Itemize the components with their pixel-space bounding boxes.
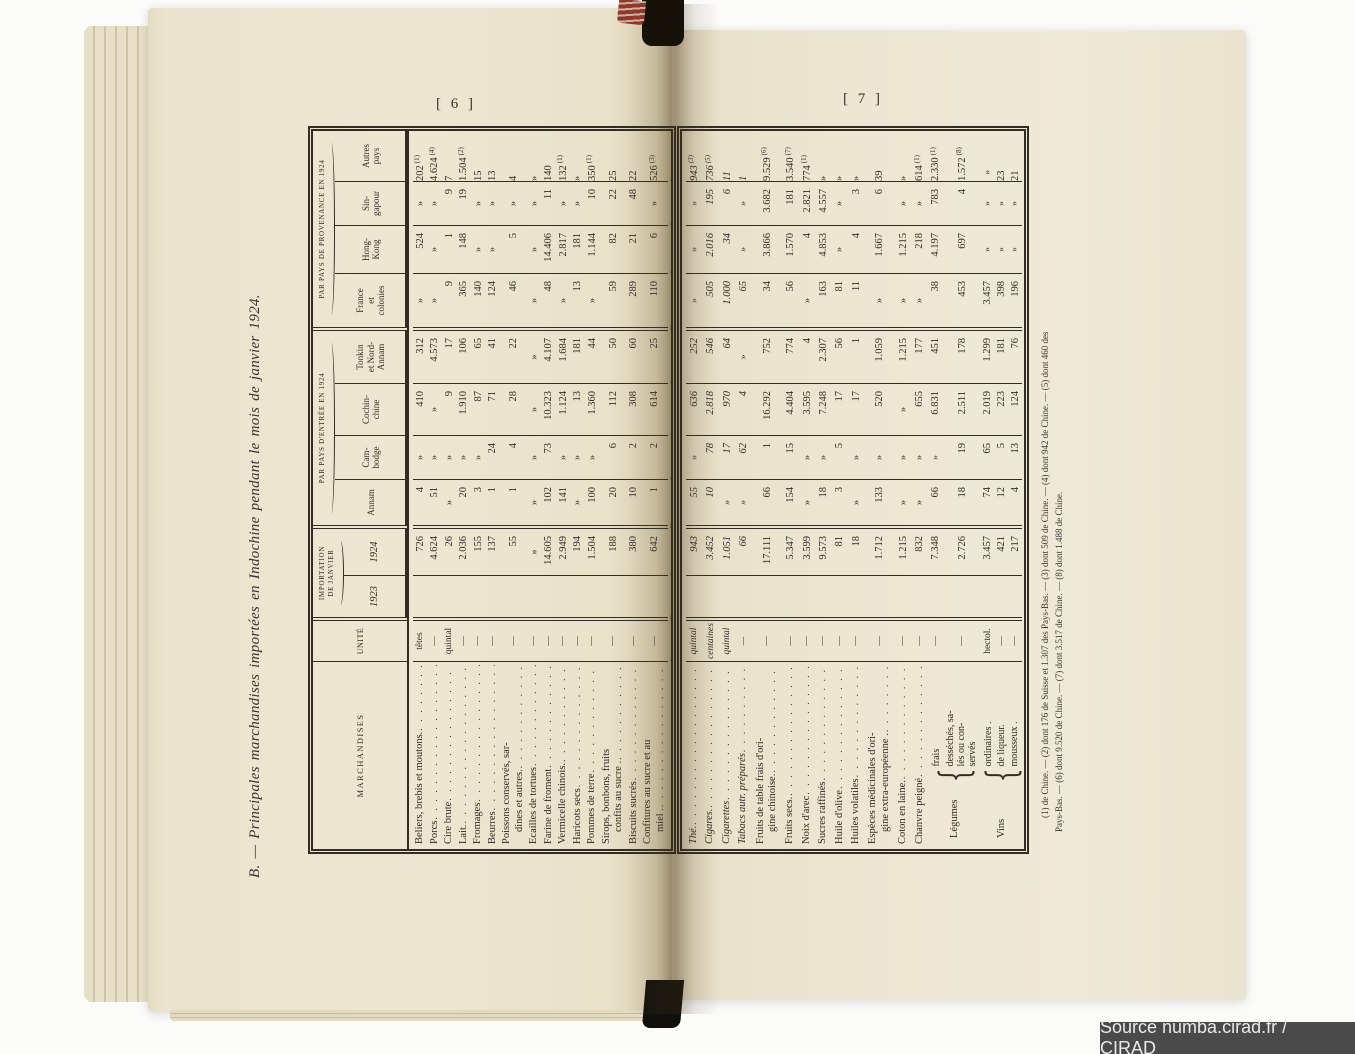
- cell-y1923: [832, 575, 848, 617]
- cell-y1924: 7.3482.726: [928, 525, 981, 575]
- cell-singapour: 9: [442, 181, 457, 225]
- row-label: Confitures au sucre et aumiel .: [641, 661, 668, 849]
- cell-annam: 1: [500, 479, 527, 525]
- cell-y1923: [457, 575, 472, 617]
- cell-tonkin: 546: [702, 327, 718, 383]
- cell-unit: quintal: [719, 617, 735, 661]
- cell-singapour-value: »: [981, 182, 995, 225]
- cell-cambodge-value: 13: [1008, 436, 1022, 479]
- cell-y1923: [442, 575, 457, 617]
- cell-cambodge: »: [848, 435, 864, 479]
- cell-cambodge: »: [895, 435, 911, 479]
- cell-cochinchine: 7.248: [815, 383, 831, 435]
- table-row: Fruits de table frais d'ori-gine chinois…: [752, 131, 783, 849]
- cell-singapour: 22: [600, 181, 627, 225]
- source-watermark-text: Source numba.cirad.fr / CIRAD: [1100, 1017, 1342, 1054]
- cell-singapour: 3: [848, 181, 864, 225]
- cell-france: 11: [848, 273, 864, 327]
- cell-cambodge: »: [799, 435, 815, 479]
- row-label: Cire brute: [442, 661, 457, 849]
- cell-france: 13: [571, 273, 586, 327]
- footnote-line: (1) de Chine. — (2) dont 176 de Suisse e…: [1039, 140, 1053, 832]
- cell-singapour: »: [527, 181, 542, 225]
- header-marchandises: MARCHANDISES: [313, 661, 407, 849]
- cell-tonkin-value: 1.299: [981, 331, 995, 383]
- cell-hongkong: 181: [571, 225, 586, 273]
- cell-annam-value: 74: [981, 480, 995, 525]
- cell-y1923: [981, 575, 1022, 617]
- cell-autres-value: 23: [995, 164, 1009, 182]
- cell-france: 34: [752, 273, 783, 327]
- cell-cochinchine: 87: [471, 383, 486, 435]
- cell-cambodge: 5: [832, 435, 848, 479]
- cell-annam: 66: [752, 479, 783, 525]
- cell-unit: —: [457, 617, 472, 661]
- cell-y1923: [585, 575, 600, 617]
- cell-cambodge: »: [471, 435, 486, 479]
- cell-cochinchine: 3.595: [799, 383, 815, 435]
- cell-singapour: 6: [719, 181, 735, 225]
- cell-y1924-value: 3.457: [981, 529, 995, 575]
- cell-hongkong: »: [471, 225, 486, 273]
- cell-unit: —: [542, 617, 557, 661]
- cell-y1924: 55: [500, 525, 527, 575]
- cell-hongkong: 1.570: [782, 225, 798, 273]
- cell-unit: hectol.——: [981, 617, 1022, 661]
- cell-france: »: [686, 273, 702, 327]
- cell-y1923: [641, 575, 668, 617]
- book-headband: [617, 0, 646, 25]
- cell-tonkin-value: 451: [928, 331, 943, 383]
- cell-autres: 774(1): [799, 148, 815, 181]
- table-row: Coton en laine.—1.215»»»1.215»1.215»»: [895, 131, 911, 849]
- cell-singapour: »: [500, 181, 527, 225]
- cell-cambodge: »: [686, 435, 702, 479]
- cell-cochinchine: 614: [641, 383, 668, 435]
- cell-cochinchine: »: [428, 383, 443, 435]
- cell-y1923: [912, 575, 928, 617]
- row-label: Cigares.: [702, 661, 718, 849]
- cell-hongkong: »: [832, 225, 848, 273]
- book-spine-top: [642, 0, 684, 46]
- cell-cochinchine: 9: [442, 383, 457, 435]
- cell-annam-value: 4: [1008, 480, 1022, 525]
- row-label: Chocolat: [670, 660, 671, 849]
- cell-france: 48: [542, 273, 557, 327]
- cell-annam: »: [912, 479, 928, 525]
- book-scan-photo: [ 6 ] [ 7 ] B. — Principales marchandise…: [0, 0, 1355, 1054]
- cell-autres: 9.529(6): [752, 140, 783, 181]
- cell-annam: »: [670, 478, 671, 527]
- cell-unit-value: —: [995, 621, 1009, 661]
- row-label: Coton en laine.: [895, 661, 911, 849]
- group-sub-label: mousseux .: [1008, 664, 1021, 767]
- cell-y1924-value: 217: [1008, 529, 1022, 575]
- cell-hongkong-value: 697: [943, 226, 981, 273]
- cell-tonkin: 106: [457, 327, 472, 383]
- cell-cambodge: »: [413, 435, 428, 479]
- dot-leader: [429, 665, 442, 820]
- cell-tonkin: 22: [500, 327, 527, 383]
- cell-autres: 22: [627, 164, 642, 182]
- header-1923: 1923: [344, 575, 407, 617]
- cell-cochinchine: 13: [571, 383, 586, 435]
- cell-autres: »: [527, 176, 542, 181]
- cell-unit: —: [527, 617, 542, 661]
- row-label: Farine de froment: [542, 661, 557, 849]
- row-label-group: Légumes{fraisdesséchés, sa-lés ou con-se…: [928, 661, 981, 849]
- cell-france: 9: [442, 273, 457, 327]
- cell-cochinchine: »: [527, 383, 542, 435]
- cell-hongkong-value: »: [981, 226, 995, 273]
- cell-cochinchine: 17: [848, 383, 864, 435]
- cell-y1924: 1.215: [895, 525, 911, 575]
- cell-singapour: 10: [585, 181, 600, 225]
- table-row: Beliers, brebis et moutons.têtes7264»410…: [413, 131, 428, 849]
- dot-leader: [487, 665, 500, 810]
- table-row: Sucres raffinés—9.57318»7.2482.3071634.8…: [815, 131, 831, 849]
- cell-annam: »: [571, 479, 586, 525]
- dot-leader: [472, 665, 485, 802]
- cell-france: 140: [471, 273, 486, 327]
- cell-y1924: 380: [627, 525, 642, 575]
- cell-unit: —: [912, 617, 928, 661]
- cell-annam: 1: [486, 479, 501, 525]
- cell-unit: —: [500, 617, 527, 661]
- cell-france-value: 196: [1008, 274, 1022, 327]
- cell-y1923-value: [995, 576, 1009, 617]
- cell-cambodge: »19: [928, 435, 981, 479]
- header-brace: [328, 143, 335, 315]
- dot-leader: [784, 665, 797, 796]
- cell-y1923: [928, 575, 981, 617]
- cell-autres: »: [848, 176, 864, 181]
- cell-y1923: [428, 575, 443, 617]
- cell-annam: 3: [832, 479, 848, 525]
- cell-unit-value: —: [943, 621, 981, 661]
- cell-france: »: [413, 273, 428, 327]
- header-tonkin: Tonkinet Nord-Annam: [335, 331, 407, 383]
- cell-singapour: 48: [627, 181, 642, 225]
- cell-hongkong: »»»: [981, 225, 1022, 273]
- cell-unit-value: —: [928, 621, 943, 661]
- cell-autres: »2321: [981, 164, 1022, 182]
- cell-unit: —: [600, 617, 627, 661]
- cell-unit: —: [799, 617, 815, 661]
- dot-leader: [586, 665, 599, 772]
- cell-hongkong: 82: [600, 225, 627, 273]
- cell-tonkin: 44: [585, 327, 600, 383]
- cell-tonkin: 2.307: [815, 327, 831, 383]
- cell-y1923: [895, 575, 911, 617]
- cell-hongkong: 1: [442, 225, 457, 273]
- cell-tonkin-value: 76: [1008, 331, 1022, 383]
- cell-tonkin: 1: [848, 327, 864, 383]
- cell-y1924: 194: [571, 525, 586, 575]
- cell-france-value: 453: [943, 274, 981, 327]
- cell-y1924: 1.712: [865, 525, 896, 575]
- cell-singapour: »: [832, 181, 848, 225]
- cell-france: »: [527, 273, 542, 327]
- cell-tonkin: 1.059: [865, 327, 896, 383]
- dot-leader: [613, 665, 626, 760]
- cell-cochinchine: 4.404: [782, 383, 798, 435]
- row-label: Huiles volatiles: [848, 661, 864, 849]
- cell-annam-value: 12: [995, 480, 1009, 525]
- cell-annam: 154: [782, 479, 798, 525]
- cell-singapour: 2.821: [799, 181, 815, 225]
- cell-hongkong-value: 4.197: [928, 226, 943, 273]
- cell-annam: 133: [865, 479, 896, 525]
- cell-y1924: 66: [735, 525, 751, 575]
- cell-y1923: [702, 575, 718, 617]
- cell-annam: »: [527, 479, 542, 525]
- cell-unit: —: [556, 617, 571, 661]
- cell-cochinchine-value: 2.019: [981, 384, 995, 435]
- header-france: Franceetcolonies: [335, 273, 407, 327]
- cell-autres: 1.504(2): [457, 140, 472, 181]
- cell-annam: 141: [556, 479, 571, 525]
- cell-hongkong: 34: [719, 225, 735, 273]
- cell-autres: »: [815, 176, 831, 181]
- cell-hongkong-value: »: [995, 226, 1009, 273]
- table-row: Fromages—1553»8765140»»15: [471, 131, 486, 849]
- cell-tonkin: 50: [600, 327, 627, 383]
- group-sub-label: ordinaires .: [982, 664, 995, 767]
- cell-y1923: [413, 575, 428, 617]
- section-title-rotated: B. — Principales marchandises importées …: [240, 218, 270, 878]
- cell-hongkong: »: [686, 225, 702, 273]
- cell-annam: 18: [815, 479, 831, 525]
- cell-autres: 2.330(1)1.572(8): [928, 140, 981, 181]
- group-sub-label: frais: [929, 664, 944, 767]
- cell-hongkong: 5: [500, 225, 527, 273]
- source-watermark-bar: Source numba.cirad.fr / CIRAD: [1100, 1022, 1355, 1054]
- cell-tonkin: 4: [799, 327, 815, 383]
- cell-autres: 736(5): [702, 148, 718, 181]
- cell-france: 365: [457, 273, 472, 327]
- cell-unit: —: [752, 617, 783, 661]
- cell-singapour-value: 4: [943, 182, 981, 225]
- cell-cochinchine: 410: [413, 383, 428, 435]
- table-row: Haricots secs—194»»1318113181»»: [571, 131, 586, 849]
- table-footnotes: (1) de Chine. — (2) dont 176 de Suisse e…: [1039, 126, 1066, 854]
- cell-y1923: [542, 575, 557, 617]
- cell-france: 38453: [928, 273, 981, 327]
- cell-singapour: »: [428, 181, 443, 225]
- cell-y1923: [556, 575, 571, 617]
- row-label: Vermicelle chinois.: [556, 661, 571, 849]
- cell-y1923-value: [981, 576, 995, 617]
- row-label: Fruits de table frais d'ori-gine chinois…: [752, 661, 783, 849]
- dot-leader: [721, 665, 734, 800]
- cell-y1923-value: [943, 576, 981, 617]
- cell-cochinchine: 71: [486, 383, 501, 435]
- header-group-importation: IMPORTATIONDE JANVIER 1923 1924: [313, 525, 407, 617]
- cell-y1924: 17.111: [752, 525, 783, 575]
- cell-cochinchine: 520: [865, 383, 896, 435]
- cell-singapour: »: [556, 181, 571, 225]
- section-title: B. — Principales marchandises importées …: [240, 218, 270, 878]
- group-sub-label: de liqueur.: [995, 664, 1008, 767]
- row-label: Beliers, brebis et moutons.: [413, 661, 428, 849]
- cell-unit: —: [815, 617, 831, 661]
- cell-singapour: 19: [457, 181, 472, 225]
- cell-cambodge: »: [457, 435, 472, 479]
- cell-annam-value: 18: [943, 480, 981, 525]
- dot-leader: [514, 665, 527, 768]
- table-row: Farine de froment—14.6051027310.3234.107…: [542, 131, 557, 849]
- table-row: Cire brutequintal26»»9179197: [442, 131, 457, 849]
- table-row: Huiles volatiles—18»»1711143»: [848, 131, 864, 849]
- cell-annam: 1: [641, 479, 668, 525]
- cell-france: 289: [627, 273, 642, 327]
- cell-france: »: [895, 273, 911, 327]
- dot-leader: [655, 665, 668, 807]
- import-table-page7: Thé.quintal94355»636252»»»943(3)Cigares.…: [677, 126, 1029, 854]
- cell-unit-value: —: [1008, 621, 1022, 661]
- cell-y1923: [848, 575, 864, 617]
- dot-leader: [880, 665, 893, 732]
- cell-cambodge: »: [912, 435, 928, 479]
- cell-cochinchine: 79: [670, 382, 671, 437]
- cell-y1923: [815, 575, 831, 617]
- cell-y1923: [500, 575, 527, 617]
- cell-annam: »: [735, 479, 751, 525]
- cell-france: »: [556, 273, 571, 327]
- cell-singapour: »: [686, 181, 702, 225]
- page-number-7: [ 7 ]: [843, 91, 883, 108]
- cell-unit: —: [585, 617, 600, 661]
- cell-cochinchine: 636: [686, 383, 702, 435]
- row-label: Beurres: [486, 661, 501, 849]
- cell-singapour: »: [895, 181, 911, 225]
- table-row: Biscuits sucrés—38010230860289214822: [627, 131, 642, 849]
- cell-y1923: [782, 575, 798, 617]
- cell-tonkin: 181: [571, 327, 586, 383]
- header-cambodge: Cam-bodge: [335, 435, 407, 479]
- cell-cambodge: »: [571, 435, 586, 479]
- cell-cochinchine: 1.124: [556, 383, 571, 435]
- cell-y1924-value: 421: [995, 529, 1009, 575]
- table-row: Porcs—4.62451»»4.573»»»4.624(4): [428, 131, 443, 849]
- cell-y1924: 3.457421217: [981, 525, 1022, 575]
- import-table-page6: MARCHANDISES UNITÉ IMPORTATIONDE JANVIER…: [308, 126, 676, 854]
- cell-hongkong: »: [735, 225, 751, 273]
- cell-autres: »: [832, 176, 848, 181]
- cell-y1923: [670, 574, 671, 619]
- header-autres-pays: Autrespays: [335, 131, 407, 181]
- cell-annam: 4: [413, 479, 428, 525]
- cell-cochinchine-value: 223: [995, 384, 1009, 435]
- cell-france: »: [799, 273, 815, 327]
- cell-y1923: [600, 575, 627, 617]
- table-row: Sirops, bonbons, fruitsconfits au sucre …: [600, 131, 627, 849]
- page-number-6: [ 6 ]: [436, 96, 476, 113]
- cell-hongkong: 218: [912, 225, 928, 273]
- cell-hongkong: »: [527, 225, 542, 273]
- header-annam: Annam: [335, 479, 407, 525]
- cell-singapour: 4.557: [815, 181, 831, 225]
- cell-tonkin: 1.29918176: [981, 327, 1022, 383]
- header-unite: UNITÉ: [313, 617, 407, 661]
- row-label: Lait.: [457, 661, 472, 849]
- row-label: Ecailles de tortues: [527, 661, 542, 849]
- cell-unit: —: [641, 617, 668, 661]
- cell-unit: —: [735, 617, 751, 661]
- cell-singapour: »: [471, 181, 486, 225]
- cell-tonkin: 4.573: [428, 327, 443, 383]
- row-label: Fromages: [471, 661, 486, 849]
- cell-y1923-value: [928, 576, 943, 617]
- book-spine-bottom: [642, 980, 684, 1028]
- cell-singapour: »: [735, 181, 751, 225]
- cell-cochinchine: 970: [719, 383, 735, 435]
- row-label: Pommes de terre: [585, 661, 600, 849]
- cell-y1924: 943: [686, 525, 702, 575]
- cell-unit: —: [848, 617, 864, 661]
- cell-hongkong: 148: [457, 225, 472, 273]
- dot-leader: [528, 665, 541, 766]
- cell-france: 59: [600, 273, 627, 327]
- cell-hongkong: 3.866: [752, 225, 783, 273]
- cell-cochinchine-value: 124: [1008, 384, 1022, 435]
- cell-annam: 55: [686, 479, 702, 525]
- cell-y1924: 9.573: [815, 525, 831, 575]
- cell-autres-value: 2.330(1): [928, 140, 943, 181]
- cell-autres: 140: [542, 158, 557, 181]
- table-row: Cigarettesquintal1.051»17970641.00034611: [719, 131, 735, 849]
- cell-cochinchine: 308: [627, 383, 642, 435]
- cell-singapour-value: »: [995, 182, 1009, 225]
- cell-annam: »: [719, 479, 735, 525]
- dot-leader: [817, 665, 830, 781]
- cell-france: 1.000: [719, 273, 735, 327]
- table-page7-wrapper: Thé.quintal94355»636252»»»943(3)Cigares.…: [677, 126, 1089, 854]
- cell-singapour-value: 783: [928, 182, 943, 225]
- cell-annam: 20: [600, 479, 627, 525]
- cell-france: »: [912, 273, 928, 327]
- cell-cambodge: 24: [486, 435, 501, 479]
- dot-leader: [850, 665, 863, 777]
- cell-france: »: [585, 273, 600, 327]
- cell-cambodge: »: [815, 435, 831, 479]
- row-label: Haricots secs: [571, 661, 586, 849]
- cell-cambodge: »: [585, 435, 600, 479]
- cell-annam: 6618: [928, 479, 981, 525]
- cell-hongkong: 1.667: [865, 225, 896, 273]
- cell-cochinchine: 2.019223124: [981, 383, 1022, 435]
- cell-cochinchine: 1.360: [585, 383, 600, 435]
- cell-unit: —: [865, 617, 896, 661]
- cell-y1924: 155: [471, 525, 486, 575]
- row-label: Noix d'arec: [799, 661, 815, 849]
- header-singapour: Sin-gapour: [335, 181, 407, 225]
- dot-leader: [458, 665, 471, 823]
- table-row: Thé.quintal94355»636252»»»943(3): [686, 131, 702, 849]
- cell-hongkong: 4.853: [815, 225, 831, 273]
- dot-leader: [557, 665, 570, 762]
- table-row: Cigares.centaines3.45210782.8185465052.0…: [702, 131, 718, 849]
- cell-y1924: 1.504: [585, 525, 600, 575]
- cell-singapour: »: [670, 180, 671, 227]
- cell-hongkong: 524: [413, 225, 428, 273]
- cell-france: 65: [735, 273, 751, 327]
- cell-cochinchine: 17: [832, 383, 848, 435]
- cell-autres: 3.540(7): [782, 140, 798, 181]
- cell-singapour: »: [413, 181, 428, 225]
- table-row: Fruits secs.—5.347154154.404774561.57018…: [782, 131, 798, 849]
